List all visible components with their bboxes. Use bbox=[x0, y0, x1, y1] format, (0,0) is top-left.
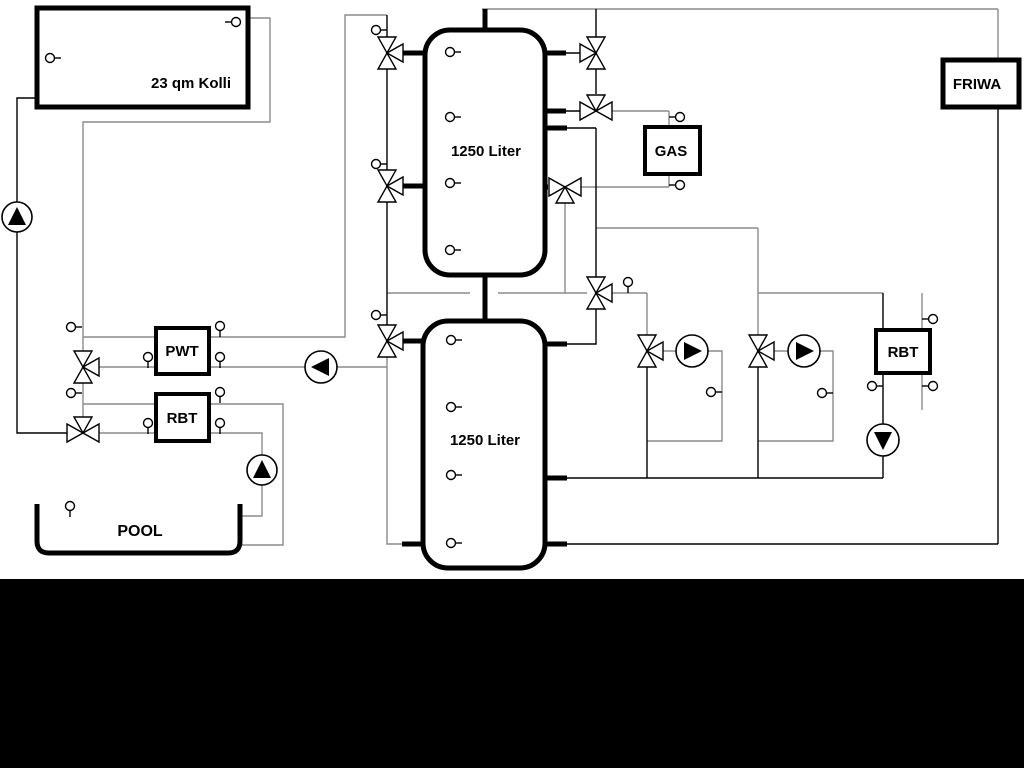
buffer-tank-bottom-label: 1250 Liter bbox=[450, 432, 520, 449]
three-way-valve-icon bbox=[638, 335, 663, 367]
pipe-valve6-stub bbox=[565, 53, 580, 111]
sensor-icon bbox=[624, 278, 633, 294]
schematic-page: 23 qm Kolli 1250 Liter 1250 Liter PWT RB… bbox=[0, 0, 1024, 768]
sensor-icon bbox=[372, 26, 388, 35]
three-way-valve-icon bbox=[549, 178, 581, 203]
pipe-solar-return bbox=[17, 98, 67, 433]
sensor-icon bbox=[216, 388, 225, 404]
heating-schematic: 23 qm Kolli 1250 Liter 1250 Liter PWT RB… bbox=[0, 0, 1024, 768]
gas-boiler-label: GAS bbox=[655, 143, 688, 160]
pipe-pool-return bbox=[240, 485, 262, 516]
pipe-branch-228 bbox=[596, 228, 758, 335]
sensor-icon bbox=[372, 160, 388, 169]
sensor-icon bbox=[922, 315, 938, 324]
sensor-icon bbox=[669, 181, 685, 190]
pipe-tank2-left-lower bbox=[387, 357, 402, 544]
three-way-valve-icon bbox=[378, 37, 403, 69]
sensor-icon bbox=[67, 323, 83, 332]
three-way-valve-icon bbox=[580, 95, 612, 120]
pool-label: POOL bbox=[117, 523, 163, 540]
pipe-group1-feed bbox=[612, 293, 647, 335]
sensor-icon bbox=[372, 311, 388, 320]
pwt-label: PWT bbox=[165, 343, 198, 360]
pool-pump-icon bbox=[247, 455, 277, 485]
tank-charge-pump-icon bbox=[305, 351, 337, 383]
friwa-label: FRIWA bbox=[953, 76, 1001, 93]
sensor-icon bbox=[67, 389, 83, 398]
solar-pump-icon bbox=[2, 202, 32, 232]
circuit2-pump-icon bbox=[788, 335, 820, 367]
sensor-icon bbox=[216, 353, 225, 369]
pipe-valve9-down bbox=[567, 309, 596, 344]
solar-collector-label: 23 qm Kolli bbox=[151, 75, 231, 92]
solar-collector-box bbox=[37, 8, 248, 107]
rbt-right-pump-icon bbox=[867, 424, 899, 456]
rbt-right-label: RBT bbox=[888, 344, 919, 361]
bottom-black-band bbox=[0, 579, 1024, 768]
sensor-icon bbox=[922, 382, 938, 391]
sensor-icon bbox=[216, 419, 225, 435]
sensor-icon bbox=[669, 113, 685, 122]
sensor-icon bbox=[216, 322, 225, 338]
three-way-valve-icon bbox=[378, 170, 403, 202]
pipe-gas-top bbox=[612, 111, 669, 127]
three-way-valve-icon bbox=[587, 277, 612, 309]
buffer-tank-top-label: 1250 Liter bbox=[451, 143, 521, 160]
sensor-icon bbox=[144, 353, 153, 369]
sensor-icon bbox=[868, 382, 884, 391]
three-way-valve-icon bbox=[74, 351, 99, 383]
sensor-icon bbox=[707, 388, 723, 397]
rbt-left-label: RBT bbox=[167, 410, 198, 427]
three-way-valve-icon bbox=[67, 417, 99, 442]
pipe-rbt-to-pool-pump bbox=[209, 433, 262, 455]
circuit1-pump-icon bbox=[676, 335, 708, 367]
sensor-icon bbox=[818, 389, 834, 398]
three-way-valve-icon bbox=[749, 335, 774, 367]
three-way-valve-icon bbox=[378, 325, 403, 357]
sensor-icon bbox=[144, 419, 153, 435]
three-way-valve-icon bbox=[580, 37, 605, 69]
